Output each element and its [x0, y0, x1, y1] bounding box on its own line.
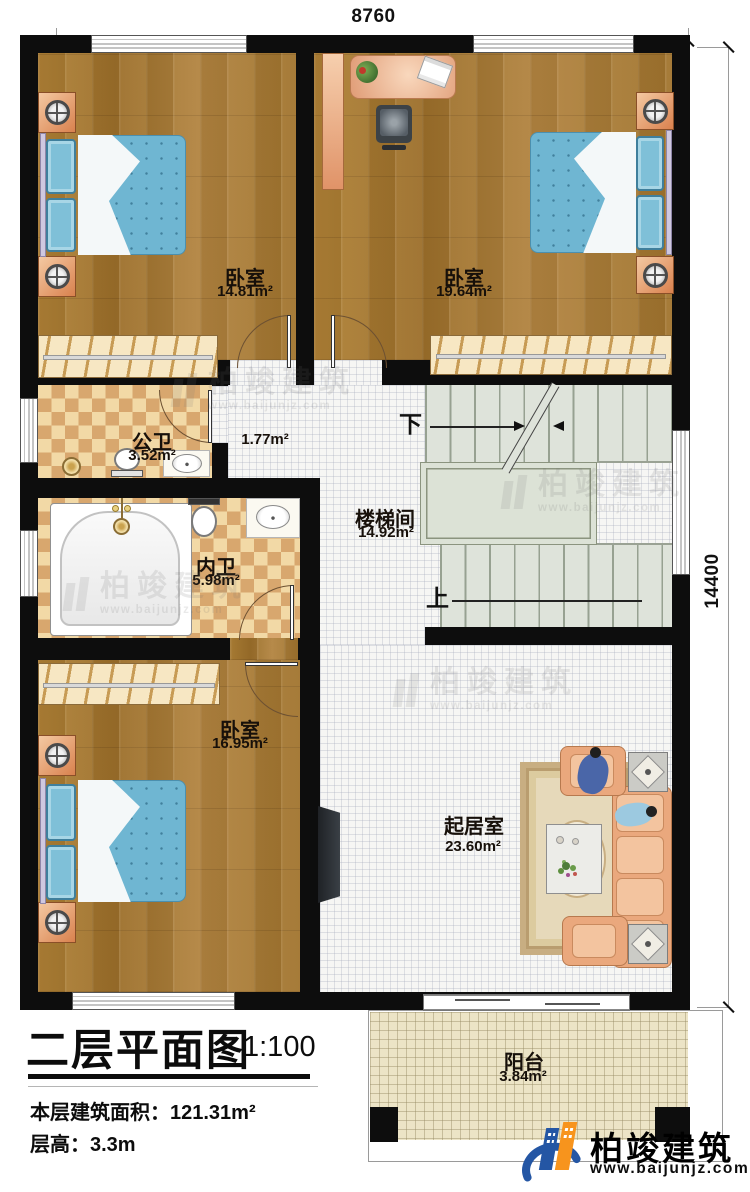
bed-headboard: [666, 130, 672, 255]
lamp-icon: [45, 743, 70, 768]
room-area: 14.92m²: [358, 524, 414, 541]
nightstand: [38, 256, 76, 297]
stair-flight-lower: [440, 545, 672, 627]
stair-arrow: [553, 421, 564, 431]
nightstand: [38, 902, 76, 943]
interior-wall: [425, 627, 672, 645]
sliding-door-panel: [545, 1003, 600, 1005]
brand-logo-icon: [506, 1118, 588, 1182]
lamp-icon: [45, 910, 70, 935]
pillow: [46, 139, 76, 194]
tv: [318, 806, 340, 903]
door-leaf: [208, 390, 212, 443]
dimension-extension: [697, 1007, 729, 1008]
stair-landing: [420, 462, 597, 545]
floor-height-value: 3.3m: [90, 1134, 136, 1156]
person-head: [590, 747, 601, 758]
room-area: 3.52m²: [128, 447, 176, 464]
sink-basin: [172, 454, 202, 473]
wardrobe: [38, 663, 220, 705]
door-leaf: [245, 662, 298, 666]
balcony-pier: [370, 1107, 398, 1142]
sofa-cushion: [616, 836, 664, 874]
nightstand: [636, 256, 674, 294]
desk-chair-seat: [380, 109, 408, 136]
floor-area-label: 本层建筑面积：: [30, 1102, 170, 1124]
toilet-tank: [111, 470, 143, 477]
window: [91, 35, 247, 53]
dimension-top-label: 8760: [341, 6, 406, 28]
toilet-tank: [188, 498, 220, 505]
stair-edge-line: [597, 461, 672, 463]
interior-wall: [20, 478, 320, 498]
plan-title: 二层平面图: [26, 1016, 251, 1078]
door-leaf: [287, 315, 291, 368]
title-rule-thick: [28, 1074, 310, 1079]
room-area: 23.60m²: [445, 838, 501, 855]
dimension-right-label: 14400: [702, 536, 724, 626]
floor-height-text: 层高：3.3m: [30, 1128, 136, 1157]
coffee-table: [546, 824, 602, 894]
armchair-cushion: [572, 924, 616, 958]
interior-wall: [300, 660, 320, 992]
room-area: 14.81m²: [217, 283, 273, 300]
lamp-dot: [645, 941, 651, 947]
window: [20, 530, 38, 597]
dimension-right-line: [728, 48, 729, 1008]
room-area: 1.77m²: [241, 431, 289, 448]
lamp-icon: [643, 99, 668, 124]
floor-area-text: 本层建筑面积：121.31m²: [30, 1096, 256, 1125]
table-decor: [556, 836, 564, 844]
table-decor: [572, 838, 579, 845]
pillow: [46, 784, 76, 841]
lamp-icon: [45, 264, 70, 289]
window: [72, 992, 235, 1010]
faucet: [124, 505, 131, 512]
nightstand: [636, 92, 674, 130]
sofa-cushion: [616, 878, 664, 916]
tall-cabinet: [322, 53, 344, 190]
interior-wall: [298, 638, 320, 660]
door-leaf: [331, 315, 335, 368]
floor-area-value: 121.31m²: [170, 1102, 256, 1124]
stair-edge-line: [597, 543, 672, 545]
lamp-icon: [643, 263, 668, 288]
window: [20, 398, 38, 463]
window: [672, 430, 690, 575]
room-area: 5.98m²: [192, 572, 240, 589]
stair-direction-line: [430, 426, 516, 428]
wardrobe: [38, 335, 218, 378]
shower-cord: [121, 498, 123, 520]
door-leaf: [290, 585, 294, 640]
stair-down-label: 下: [399, 405, 422, 439]
floor-drain: [62, 457, 81, 476]
nightstand: [38, 735, 76, 776]
plan-scale: 1:100: [243, 1031, 316, 1064]
room-area: 3.84m²: [499, 1068, 547, 1085]
room-label: 起居室: [444, 810, 504, 839]
door-threshold: [230, 638, 298, 660]
pillow: [46, 845, 76, 900]
pillow: [46, 198, 76, 252]
toilet-bowl: [191, 506, 217, 537]
shower-head: [113, 518, 130, 535]
sink-basin: [256, 505, 290, 529]
wardrobe: [430, 335, 672, 375]
lamp-icon: [45, 100, 70, 125]
room-area: 16.95m²: [212, 735, 268, 752]
person-head: [646, 806, 657, 817]
pillow: [636, 195, 664, 250]
plant: [356, 61, 378, 83]
floor-plan-page: 8760 14400 下 上: [0, 0, 750, 1192]
flower-decor: [562, 862, 570, 870]
pillow: [636, 136, 664, 191]
door-threshold: [212, 386, 228, 443]
lamp-dot: [645, 769, 651, 775]
stair-direction-line: [452, 600, 642, 602]
sliding-door-panel: [455, 999, 510, 1001]
brand-website: www.baijunjz.com: [590, 1160, 749, 1178]
nightstand: [38, 92, 76, 133]
stair-arrow: [514, 421, 525, 431]
desk-chair-base: [382, 145, 406, 150]
dimension-extension: [697, 47, 729, 48]
faucet: [112, 505, 119, 512]
stair-up-label: 上: [426, 579, 449, 613]
title-rule-thin: [28, 1086, 318, 1087]
floor-height-label: 层高：: [30, 1134, 90, 1156]
window: [473, 35, 634, 53]
room-area: 19.64m²: [436, 283, 492, 300]
interior-wall: [20, 638, 230, 660]
